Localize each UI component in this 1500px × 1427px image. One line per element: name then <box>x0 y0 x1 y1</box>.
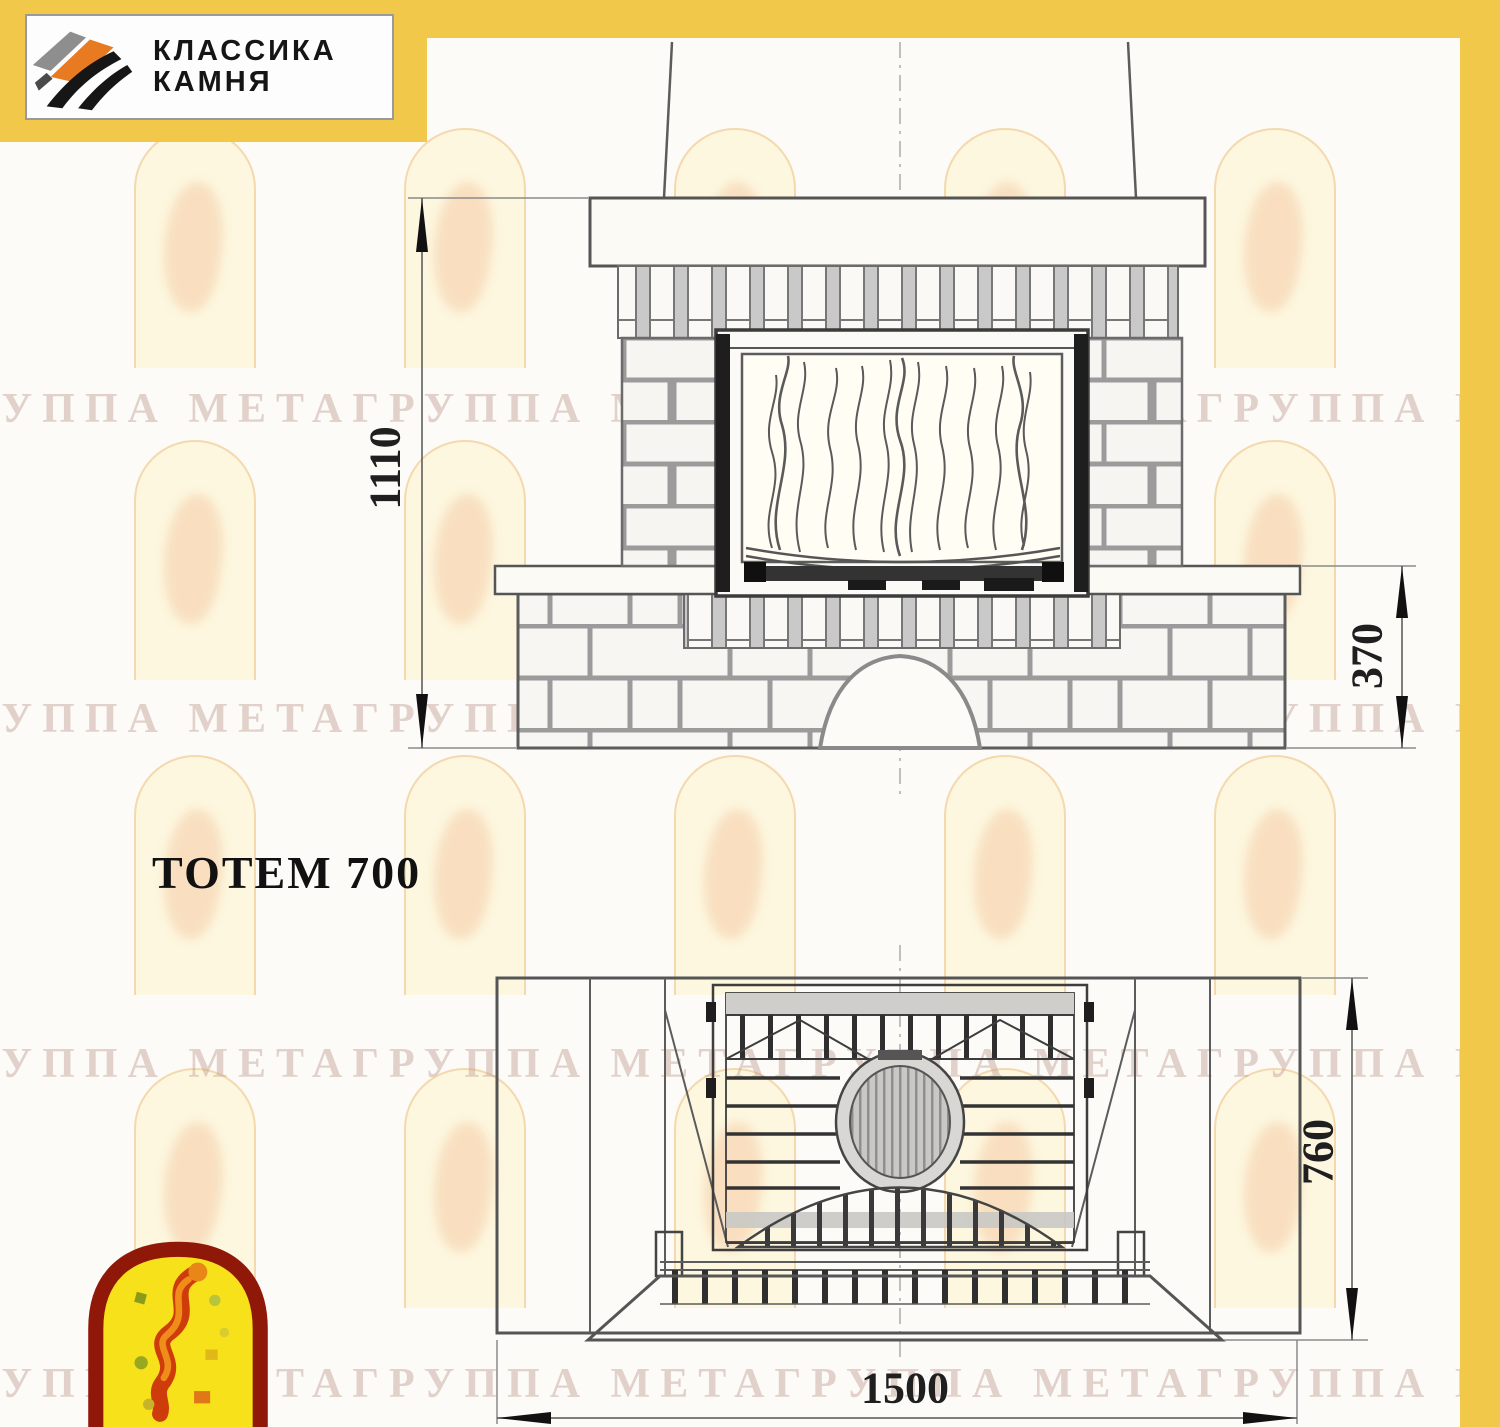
firebox-plan <box>706 985 1094 1250</box>
mantel-shelf <box>590 198 1205 266</box>
vent-middle <box>922 580 960 590</box>
catalog-page: ГРУППА МЕТАГРУППА МЕТАГРУППА МЕТАГРУППА … <box>0 0 1500 1427</box>
vent-left <box>848 580 886 590</box>
technical-drawing <box>0 0 1500 1427</box>
dim-label-total-height: 1110 <box>360 426 411 509</box>
firebox-front <box>716 330 1088 596</box>
logo-line1: КЛАССИКА <box>153 36 337 67</box>
dentil-band-bottom <box>684 594 1120 648</box>
dim-label-plan-width: 1500 <box>861 1363 949 1414</box>
model-title: ТОТЕМ 700 <box>152 846 421 899</box>
dim-label-plan-depth: 760 <box>1293 1119 1344 1185</box>
logo-line2: КАМНЯ <box>153 67 337 98</box>
mascot-icon <box>75 1238 281 1427</box>
logo-text: КЛАССИКА КАМНЯ <box>153 36 337 98</box>
logo-mark-icon <box>27 21 145 113</box>
front-elevation <box>408 42 1416 800</box>
splay-left <box>665 1010 728 1247</box>
plan-view <box>497 945 1368 1424</box>
brick-column-right <box>1086 338 1182 566</box>
dentil-band-top <box>618 266 1178 338</box>
splay-right <box>1072 1010 1135 1247</box>
dim-label-bench-height: 370 <box>1342 623 1393 689</box>
brick-column-left <box>622 338 718 566</box>
company-logo: КЛАССИКА КАМНЯ <box>25 14 394 120</box>
firebox-dome <box>738 1188 1062 1248</box>
vent-right <box>984 578 1034 591</box>
mascot-emblem <box>75 1238 281 1427</box>
